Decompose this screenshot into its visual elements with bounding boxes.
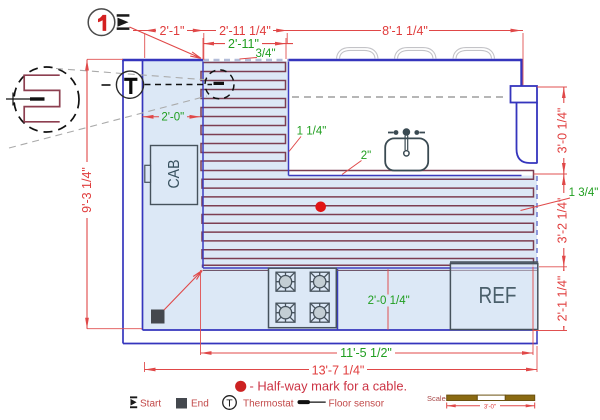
- svg-text:1 3/4": 1 3/4": [569, 187, 599, 199]
- svg-text:1 1/4": 1 1/4": [297, 126, 327, 138]
- svg-text:9'-3 1/4": 9'-3 1/4": [80, 167, 94, 213]
- svg-text:T: T: [226, 398, 233, 410]
- svg-text:End: End: [191, 398, 209, 409]
- svg-text:13'-7 1/4": 13'-7 1/4": [312, 364, 365, 378]
- svg-text:CAB: CAB: [166, 160, 183, 189]
- svg-text:2'-0 1/4": 2'-0 1/4": [368, 295, 410, 307]
- svg-text:- Half-way mark for a cable.: - Half-way mark for a cable.: [250, 378, 408, 393]
- svg-text:3'-2 1/4": 3'-2 1/4": [556, 198, 570, 244]
- svg-text:8'-1 1/4": 8'-1 1/4": [382, 24, 428, 38]
- svg-text:Start: Start: [140, 398, 161, 409]
- svg-text:Scale: Scale: [427, 394, 446, 403]
- svg-text:2'-11": 2'-11": [228, 37, 259, 51]
- svg-text:2'-11 1/4": 2'-11 1/4": [219, 24, 271, 38]
- svg-text:3'-0 1/4": 3'-0 1/4": [556, 108, 570, 154]
- svg-text:2'-1 1/4": 2'-1 1/4": [556, 276, 570, 322]
- svg-text:Thermostat: Thermostat: [243, 398, 294, 409]
- svg-text:REF: REF: [479, 282, 517, 308]
- svg-text:11'-5 1/2": 11'-5 1/2": [340, 346, 392, 360]
- svg-text:2": 2": [361, 150, 371, 162]
- svg-text:2'-0": 2'-0": [161, 111, 184, 123]
- svg-text:3/4": 3/4": [255, 48, 275, 60]
- svg-text:Floor sensor: Floor sensor: [329, 398, 385, 409]
- svg-text:3'-0": 3'-0": [484, 404, 496, 411]
- svg-text:2'-1": 2'-1": [160, 24, 185, 38]
